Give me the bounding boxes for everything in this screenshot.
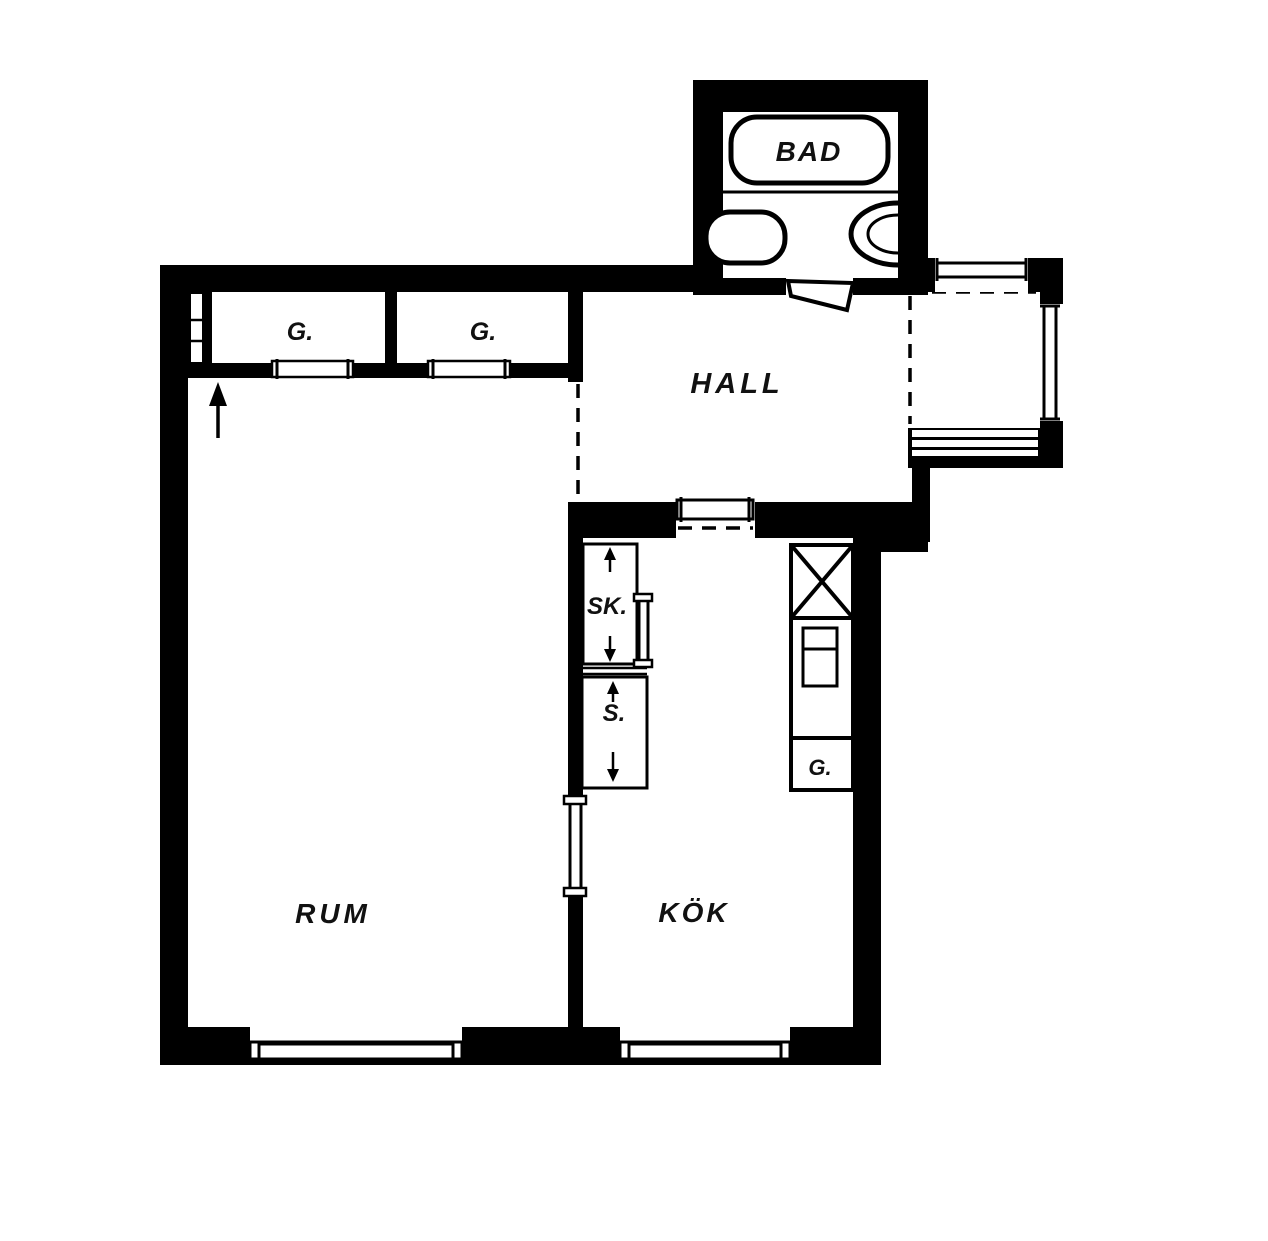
kitchen-cabinet-label: G. bbox=[808, 755, 831, 780]
wall-segment bbox=[160, 265, 693, 292]
wall-segment bbox=[1040, 258, 1063, 304]
window-icon bbox=[250, 1027, 462, 1059]
door-swing-icon bbox=[788, 281, 853, 310]
entry-arrow-icon bbox=[209, 382, 227, 438]
window-icon bbox=[620, 1027, 790, 1059]
wall-segment bbox=[568, 894, 583, 1030]
closet-s-label: S. bbox=[603, 700, 626, 727]
floor-plan-svg: BAD HALL G. G. SK. S. G. RUM KÖK bbox=[0, 0, 1268, 1241]
wall-segment bbox=[853, 278, 898, 295]
wall-segment bbox=[723, 278, 786, 295]
closet-sk-label: SK. bbox=[587, 593, 627, 620]
sliding-door-icon bbox=[272, 359, 353, 379]
room-kitchen-door bbox=[564, 796, 586, 896]
sink-icon bbox=[851, 203, 898, 265]
wall-segment bbox=[505, 363, 580, 378]
wall-segment bbox=[160, 265, 188, 1065]
hall-label: HALL bbox=[690, 368, 783, 400]
floor-plan-canvas: BAD HALL G. G. SK. S. G. RUM KÖK bbox=[0, 0, 1268, 1241]
bathroom-label: BAD bbox=[776, 136, 843, 167]
toilet-icon bbox=[706, 212, 785, 263]
kitchen-fixtures bbox=[791, 545, 853, 790]
window-icon bbox=[935, 258, 1028, 292]
refrigerator-cross-icon bbox=[791, 545, 853, 618]
dashed-boundaries bbox=[578, 292, 1036, 528]
sliding-door-icon bbox=[677, 497, 753, 522]
closet1-label: G. bbox=[287, 318, 313, 346]
wall-segment bbox=[755, 502, 928, 538]
wall-segment bbox=[348, 363, 433, 378]
vent-shaft bbox=[190, 293, 203, 363]
wall-segment bbox=[853, 530, 881, 1065]
wall-segment bbox=[568, 502, 676, 538]
room-label: RUM bbox=[295, 898, 371, 929]
wall-segment bbox=[385, 292, 397, 363]
wall-segment bbox=[925, 258, 936, 292]
wall-segment bbox=[881, 538, 928, 552]
windows bbox=[250, 258, 1060, 1059]
kitchen-label: KÖK bbox=[658, 897, 729, 928]
wall-segment bbox=[693, 80, 928, 112]
balcony-threshold bbox=[912, 430, 1038, 456]
stove-icon bbox=[803, 628, 837, 686]
wall-segment bbox=[898, 80, 928, 295]
wall-segment bbox=[188, 363, 277, 378]
window-icon bbox=[1040, 304, 1060, 421]
closet2-label: G. bbox=[470, 318, 496, 346]
sliding-door-icon bbox=[428, 359, 510, 379]
